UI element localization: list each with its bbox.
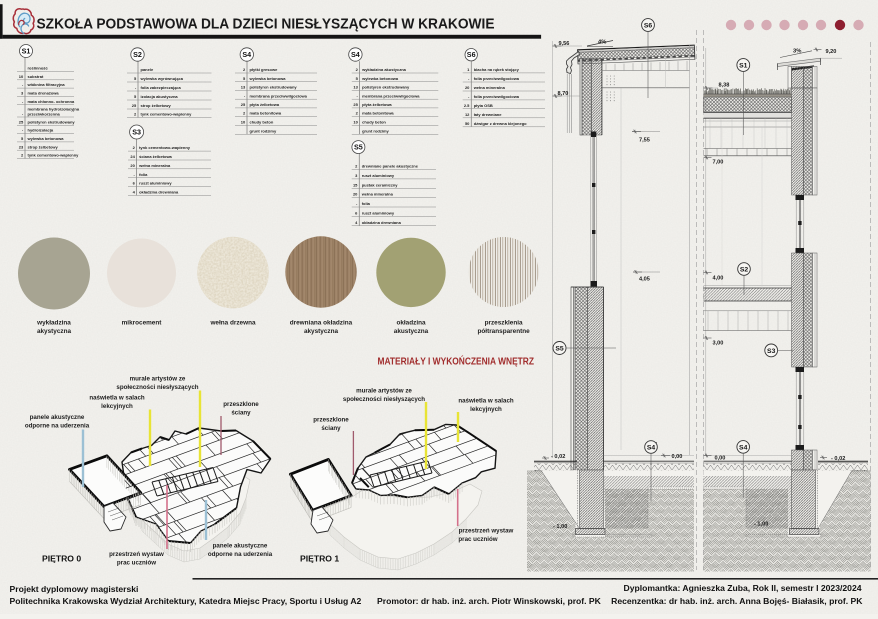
svg-text:wylewka wyrównująca: wylewka wyrównująca <box>140 76 184 81</box>
svg-text:20: 20 <box>353 192 358 197</box>
svg-text:10: 10 <box>19 74 24 79</box>
svg-text:0,00: 0,00 <box>715 456 726 462</box>
svg-text:społeczności niesłyszących: społeczności niesłyszących <box>343 396 425 403</box>
svg-text:′: ′ <box>656 441 657 446</box>
svg-text:folia: folia <box>362 201 371 206</box>
svg-text:akustyczna: akustyczna <box>394 328 429 335</box>
svg-text:13: 13 <box>353 85 358 90</box>
svg-text:panele akustyczne: panele akustyczne <box>213 543 268 550</box>
svg-text:- 0,02: - 0,02 <box>831 456 845 462</box>
svg-text:przeszklone: przeszklone <box>313 417 349 424</box>
svg-text:ruszt aluminiowy: ruszt aluminiowy <box>362 210 395 215</box>
svg-text:0,00: 0,00 <box>672 454 683 460</box>
svg-text:3,00: 3,00 <box>713 341 724 347</box>
svg-text:12: 12 <box>465 112 470 117</box>
svg-text:S1: S1 <box>739 63 748 70</box>
svg-text:S6: S6 <box>467 50 476 59</box>
svg-text:S4: S4 <box>739 444 748 451</box>
svg-text:25: 25 <box>19 119 24 124</box>
svg-text:50: 50 <box>465 121 470 126</box>
svg-text:wełna mineralna: wełna mineralna <box>473 85 506 90</box>
svg-text:S2: S2 <box>133 50 142 59</box>
svg-text:polistyren ekstrudowany: polistyren ekstrudowany <box>250 85 298 90</box>
svg-text:blacha na rąbek stojący: blacha na rąbek stojący <box>474 67 520 72</box>
svg-text:panele: panele <box>141 67 154 72</box>
svg-text:izolacja akustyczna: izolacja akustyczna <box>141 94 179 99</box>
svg-text:′: ′ <box>360 48 361 53</box>
svg-text:SZKOŁA PODSTAWOWA DLA DZIECI N: SZKOŁA PODSTAWOWA DLA DZIECI NIESŁYSZĄCY… <box>37 16 495 33</box>
svg-text:wykładzina akustyczna: wykładzina akustyczna <box>361 67 407 72</box>
svg-text:ruszt aluminiowy: ruszt aluminiowy <box>139 181 172 186</box>
svg-text:Dyplomantka: Agnieszka Zuba, R: Dyplomantka: Agnieszka Zuba, Rok II, sem… <box>623 583 861 593</box>
svg-text:10: 10 <box>353 120 358 125</box>
svg-text:odporne na uderzenia: odporne na uderzenia <box>208 551 273 558</box>
svg-text:PIĘTRO 1: PIĘTRO 1 <box>300 554 339 564</box>
svg-text:- 1,00: - 1,00 <box>754 522 768 528</box>
svg-text:płyta żelbetowa: płyta żelbetowa <box>250 102 280 107</box>
svg-text:grunt rodzimy: grunt rodzimy <box>362 128 389 133</box>
svg-text:pustak ceramiczny: pustak ceramiczny <box>362 182 399 187</box>
svg-text:lekcyjnych: lekcyjnych <box>101 403 133 410</box>
svg-text:ściana żelbetowa: ściana żelbetowa <box>139 154 172 159</box>
svg-text:tynk cementowo-wapienny: tynk cementowo-wapienny <box>139 145 191 150</box>
svg-text:odporne na uderzenia: odporne na uderzenia <box>25 423 90 430</box>
svg-text:przeszklone: przeszklone <box>223 401 259 408</box>
svg-text:Recenzentka: dr hab. inż. arch: Recenzentka: dr hab. inż. arch. Anna Boj… <box>611 596 863 606</box>
svg-text:polistyren ekstrudowany: polistyren ekstrudowany <box>28 119 76 124</box>
svg-text:chudy beton: chudy beton <box>250 120 274 125</box>
svg-text:- 1,00: - 1,00 <box>553 524 567 530</box>
svg-text:- 0,02: - 0,02 <box>551 454 565 460</box>
svg-text:płytki gresowe: płytki gresowe <box>250 67 279 72</box>
svg-text:25: 25 <box>241 102 246 107</box>
svg-text:społeczności niesłyszących: społeczności niesłyszących <box>116 384 198 391</box>
svg-text:okładzina: okładzina <box>396 320 426 327</box>
svg-text:prac uczniów: prac uczniów <box>117 560 156 567</box>
svg-text:S1: S1 <box>22 46 31 55</box>
svg-text:strop żelbetowy: strop żelbetowy <box>141 103 172 108</box>
svg-text:MATERIAŁY I WYKOŃCZENIA WNĘTRZ: MATERIAŁY I WYKOŃCZENIA WNĘTRZ <box>378 355 535 368</box>
svg-text:folia zabezpieczająca: folia zabezpieczająca <box>141 85 182 90</box>
svg-text:wełna mineralna: wełna mineralna <box>138 163 171 168</box>
svg-text:S4: S4 <box>647 445 656 452</box>
svg-text:wełna mineralna: wełna mineralna <box>361 192 394 197</box>
svg-text:9,56: 9,56 <box>559 41 570 47</box>
svg-text:przeszklenia: przeszklenia <box>485 320 523 327</box>
svg-text:S3: S3 <box>132 127 141 136</box>
svg-text:polistyren ekstrudowany: polistyren ekstrudowany <box>362 85 410 90</box>
svg-text:akystyczna: akystyczna <box>304 328 339 335</box>
svg-text:25: 25 <box>353 102 358 107</box>
svg-text:prac uczniów: prac uczniów <box>458 536 497 543</box>
svg-text:wylewka betonowa: wylewka betonowa <box>361 76 399 81</box>
svg-text:tynk cementowo-wapienny: tynk cementowo-wapienny <box>28 153 80 158</box>
svg-text:tynk cementowo-wapienny: tynk cementowo-wapienny <box>141 112 193 117</box>
svg-text:PIĘTRO 0: PIĘTRO 0 <box>42 554 81 564</box>
svg-text:płyta OSB: płyta OSB <box>474 103 493 108</box>
svg-text:membrana przeciwwilgociowa: membrana przeciwwilgociowa <box>250 93 308 98</box>
svg-text:strop żelbetowy: strop żelbetowy <box>28 144 59 149</box>
svg-text:dźwigar z drewna klejonego: dźwigar z drewna klejonego <box>474 121 527 126</box>
svg-text:murale artystów ze: murale artystów ze <box>356 388 412 395</box>
svg-text:akystyczna: akystyczna <box>37 328 72 335</box>
svg-text:włóknina filtracyjna: włóknina filtracyjna <box>27 82 66 87</box>
svg-text:lekcyjnych: lekcyjnych <box>470 406 502 413</box>
svg-text:20: 20 <box>130 163 135 168</box>
svg-text:8,38: 8,38 <box>719 83 730 89</box>
svg-text:ruszt aluminiowy: ruszt aluminiowy <box>362 173 395 178</box>
svg-text:15: 15 <box>353 182 358 187</box>
svg-text:S6: S6 <box>644 23 653 30</box>
svg-text:folia przeciwwilgociowa: folia przeciwwilgociowa <box>474 94 520 99</box>
svg-text:mata betonitowa: mata betonitowa <box>250 111 282 116</box>
svg-text:13: 13 <box>241 85 246 90</box>
svg-text:okładzina drewniana: okładzina drewniana <box>139 190 179 195</box>
svg-text:wełna drzewna: wełna drzewna <box>209 320 256 327</box>
svg-text:okładzina drewniana: okładzina drewniana <box>362 220 402 225</box>
svg-text:chudy beton: chudy beton <box>362 120 386 125</box>
svg-text:wylewka betonowa: wylewka betonowa <box>27 136 65 141</box>
svg-text:płyta żelbetowa: płyta żelbetowa <box>362 102 392 107</box>
svg-text:2.5: 2.5 <box>464 103 470 108</box>
svg-text:przestrzeń wystaw: przestrzeń wystaw <box>109 551 164 558</box>
svg-text:24: 24 <box>130 154 135 159</box>
svg-text:ściany: ściany <box>231 410 251 417</box>
svg-text:folia: folia <box>139 172 148 177</box>
svg-text:panele akustyczne: panele akustyczne <box>30 414 85 421</box>
svg-text:Projekt dyplomowy magisterski: Projekt dyplomowy magisterski <box>10 584 139 594</box>
svg-text:folia przeciwwilgociowa: folia przeciwwilgociowa <box>474 76 520 81</box>
svg-text:3%: 3% <box>793 49 801 55</box>
svg-text:substrat: substrat <box>28 74 44 79</box>
svg-text:S4: S4 <box>351 50 360 59</box>
svg-text:S3: S3 <box>767 348 776 355</box>
svg-text:10: 10 <box>241 120 246 125</box>
svg-text:przeciwkorzenna: przeciwkorzenna <box>28 111 61 116</box>
svg-text:S5: S5 <box>555 346 564 353</box>
svg-text:naświetla w salach: naświetla w salach <box>458 398 514 405</box>
svg-text:S4: S4 <box>242 50 251 59</box>
svg-text:Politechnika Krakowska Wydział: Politechnika Krakowska Wydział Architekt… <box>10 596 362 606</box>
svg-text:25: 25 <box>132 103 137 108</box>
svg-text:7,55: 7,55 <box>639 138 650 144</box>
svg-text:wylewka betonowa: wylewka betonowa <box>249 76 287 81</box>
svg-text:łaty drewniane: łaty drewniane <box>474 112 503 117</box>
svg-text:mikrocement: mikrocement <box>122 320 163 327</box>
svg-text:grunt rodzimy: grunt rodzimy <box>250 128 277 133</box>
svg-text:membrana przeciwwilgociowa: membrana przeciwwilgociowa <box>362 93 420 98</box>
svg-text:23: 23 <box>19 144 24 149</box>
svg-text:4,00: 4,00 <box>713 276 724 282</box>
svg-text:drewniane panele akustyczne: drewniane panele akustyczne <box>362 164 419 169</box>
svg-text:mata betonitowa: mata betonitowa <box>362 111 394 116</box>
svg-text:drewniana okładzina: drewniana okładzina <box>290 320 353 327</box>
svg-text:roślinność: roślinność <box>28 66 49 71</box>
svg-text:4,05: 4,05 <box>639 277 650 283</box>
svg-text:8,70: 8,70 <box>558 91 569 97</box>
svg-text:półtransparentne: półtransparentne <box>477 328 530 335</box>
svg-text:4%: 4% <box>598 40 606 46</box>
svg-text:ściany: ściany <box>321 425 341 432</box>
svg-text:Promotor: dr hab. inż. arch. P: Promotor: dr hab. inż. arch. Piotr Winsk… <box>377 596 602 606</box>
svg-text:S5: S5 <box>354 143 363 152</box>
svg-text:naświetla w salach: naświetla w salach <box>89 395 145 402</box>
svg-text:murale artystów ze: murale artystów ze <box>130 376 186 383</box>
svg-text:7,00: 7,00 <box>713 160 724 166</box>
svg-text:20: 20 <box>465 85 470 90</box>
svg-text:wykładzina: wykładzina <box>36 320 71 327</box>
svg-text:S2: S2 <box>740 267 749 274</box>
svg-text:mata chłonno- ochronna: mata chłonno- ochronna <box>28 99 75 104</box>
svg-text:mata drenażowa: mata drenażowa <box>28 91 60 96</box>
svg-text:hydroizolacja: hydroizolacja <box>28 128 54 133</box>
svg-text:przestrzeń wystaw: przestrzeń wystaw <box>459 528 514 535</box>
svg-text:9,20: 9,20 <box>826 49 837 55</box>
